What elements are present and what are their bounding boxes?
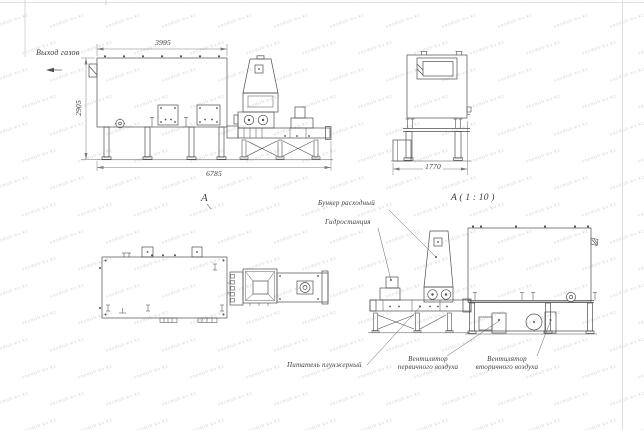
furnace-stand	[102, 127, 226, 159]
dim-width: 1770	[423, 163, 443, 171]
detail-view	[367, 210, 598, 365]
furnace-body-detail	[468, 228, 591, 302]
dim-body-length: 3995	[155, 39, 171, 47]
secondary-air-fan	[526, 312, 556, 333]
feeder-plan	[227, 269, 328, 306]
drive-riser-side	[291, 107, 313, 128]
roof-bolts-detail	[472, 225, 589, 227]
callout-hydro-station: Гидростанция	[325, 219, 371, 227]
furnace-body-plan	[102, 257, 227, 318]
hopper-detail	[424, 231, 453, 287]
gas-outlet-label: Выход газов	[36, 49, 79, 58]
door-panel-2	[197, 105, 220, 125]
inspection-window	[417, 58, 457, 79]
conveyor-tube-detail	[370, 299, 471, 312]
callout-hopper: Бункер расходный	[318, 200, 375, 208]
detail-title: A ( 1 : 10 )	[451, 193, 495, 203]
furnace-body-end	[407, 55, 467, 118]
drain-flange-detail	[566, 292, 575, 301]
gas-outlet-port	[89, 64, 97, 77]
callout-secondary-fan: Вентилятор вторичного воздуха	[476, 356, 538, 371]
furnace-body-side	[97, 58, 227, 127]
section-tick	[207, 204, 211, 209]
lifting-lugs	[421, 52, 463, 56]
top-right-bracket	[591, 238, 598, 246]
dim-total-length: 6785	[206, 170, 222, 178]
roof-bolts	[104, 55, 220, 57]
dim-height: 2905	[75, 100, 83, 116]
feeder-fan-housing-side	[234, 112, 274, 128]
anchor-bolts-detail	[473, 293, 597, 301]
callout-secondary-fan-line2: вторичного воздуха	[476, 364, 538, 372]
callout-primary-fan: Вентилятор первичного воздуха	[398, 356, 459, 371]
side-bracket-end	[467, 107, 471, 115]
side-view	[81, 44, 333, 171]
hopper-side	[243, 56, 278, 112]
plan-bolts	[99, 254, 225, 315]
base-rail-detail	[468, 301, 594, 303]
base-bolts-end	[406, 119, 463, 128]
callout-leaders	[367, 210, 551, 365]
primary-air-fan	[479, 313, 506, 333]
door-panel-1	[158, 105, 178, 125]
feeder-support-frame-detail	[368, 313, 470, 333]
callout-plunger-feeder: Питатель плунжерный	[287, 362, 362, 370]
door-strips-plan	[160, 318, 217, 323]
gas-flow-arrow	[46, 68, 62, 72]
position-marks-plan	[106, 264, 224, 313]
end-view	[391, 52, 471, 176]
plan-top-tick	[122, 253, 131, 257]
plan-section-label: A	[201, 192, 208, 204]
feeder-support-frame-side	[240, 140, 320, 159]
callout-primary-fan-line2: первичного воздуха	[398, 364, 459, 372]
hydro-station	[380, 277, 400, 300]
conveyor-tube-side	[227, 126, 331, 140]
base-frame-detail	[468, 303, 594, 333]
drawing-sheet: vozduh-kv.kzvozduh-kv.kzvozduh-kv.kzvozd…	[0, 0, 644, 430]
feeder-housing-plan	[277, 273, 328, 302]
base-frame-end	[403, 129, 470, 161]
plan-view	[99, 204, 328, 323]
riser-boxes-plan	[142, 247, 202, 257]
dimension-6785-lines	[97, 141, 331, 171]
